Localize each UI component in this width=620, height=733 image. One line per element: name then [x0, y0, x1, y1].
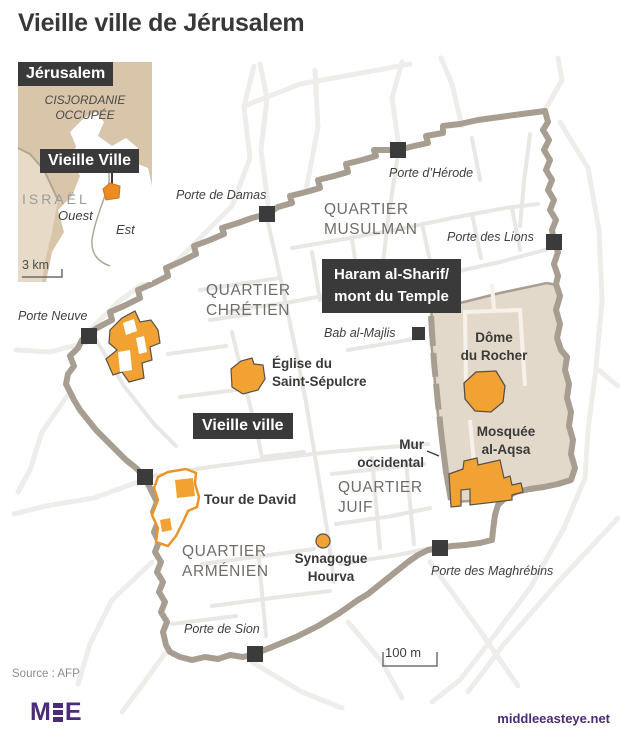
tower-of-david-keep	[160, 518, 172, 532]
gate-porte-dherode	[390, 142, 406, 158]
label-dome-du-rocher: Dôme du Rocher	[447, 329, 541, 364]
source-credit: Source : AFP	[12, 667, 80, 681]
label-porte-de-damas: Porte de Damas	[176, 188, 266, 204]
label-map-scale: 100 m	[385, 645, 421, 661]
mur-occidental-pointer	[427, 451, 439, 456]
holy-sepulchre-shape	[231, 358, 265, 394]
gate-porte-de-damas	[259, 206, 275, 222]
label-porte-neuve: Porte Neuve	[18, 309, 87, 325]
label-porte-de-sion: Porte de Sion	[184, 622, 260, 638]
label-quartier-armenien: QUARTIER ARMÉNIEN	[182, 542, 269, 582]
gate-porte-des-lions	[546, 234, 562, 250]
dome-of-the-rock-shape	[464, 371, 505, 412]
inset-region-label: CISJORDANIE OCCUPÉE	[32, 93, 138, 123]
label-tour-de-david: Tour de David	[204, 490, 296, 508]
label-synagogue-hourva: Synagogue Hourva	[284, 550, 378, 585]
label-mur-occidental: Mur occidental	[348, 436, 424, 471]
gate-porte-de-sion	[247, 646, 263, 662]
inset-city-label: Jérusalem	[18, 62, 113, 86]
website-link[interactable]: middleeasteye.net	[497, 711, 610, 726]
jerusalem-old-city-infographic: Vieille ville de Jérusalem Jérusalem CIS…	[0, 0, 620, 733]
gate-porte-neuve	[81, 328, 97, 344]
label-quartier-chretien: QUARTIER CHRÉTIEN	[206, 281, 291, 321]
inset-west-label: Ouest	[58, 208, 93, 224]
inset-country-label: ISRAËL	[22, 191, 90, 209]
label-haram-al-sharif: Haram al-Sharif/ mont du Temple	[322, 259, 461, 313]
gate-porte-des-maghrebins	[432, 540, 448, 556]
label-mosquee-al-aqsa: Mosquée al-Aqsa	[460, 423, 552, 458]
inset-east-label: Est	[116, 222, 135, 238]
label-porte-des-lions: Porte des Lions	[447, 230, 534, 246]
mee-logo: M E	[30, 699, 82, 725]
label-porte-des-maghrebins: Porte des Maghrébins	[431, 564, 553, 580]
label-quartier-musulman: QUARTIER MUSULMAN	[324, 200, 418, 240]
porte-neuve-complex-courtyard	[118, 350, 132, 372]
mee-logo-m: M	[30, 699, 51, 725]
gate-porte-de-jaffa	[137, 469, 153, 485]
tower-of-david-keep	[175, 478, 195, 498]
hurva-synagogue-marker	[316, 534, 330, 548]
label-eglise-saint-sepulcre: Église du Saint-Sépulcre	[272, 355, 367, 390]
label-bab-al-majlis: Bab al-Majlis	[324, 326, 396, 342]
page-title: Vieille ville de Jérusalem	[18, 8, 304, 39]
gate-bab-al-majlis	[412, 327, 425, 340]
mee-logo-e: E	[65, 699, 82, 725]
inset-scale-label: 3 km	[22, 258, 49, 274]
label-quartier-juif: QUARTIER JUIF	[338, 478, 423, 518]
mee-logo-bars-icon	[53, 703, 63, 722]
label-porte-dherode: Porte d’Hérode	[389, 166, 473, 182]
inset-old-city-label: Vieille Ville	[40, 149, 139, 173]
label-vieille-ville: Vieille ville	[193, 413, 293, 439]
